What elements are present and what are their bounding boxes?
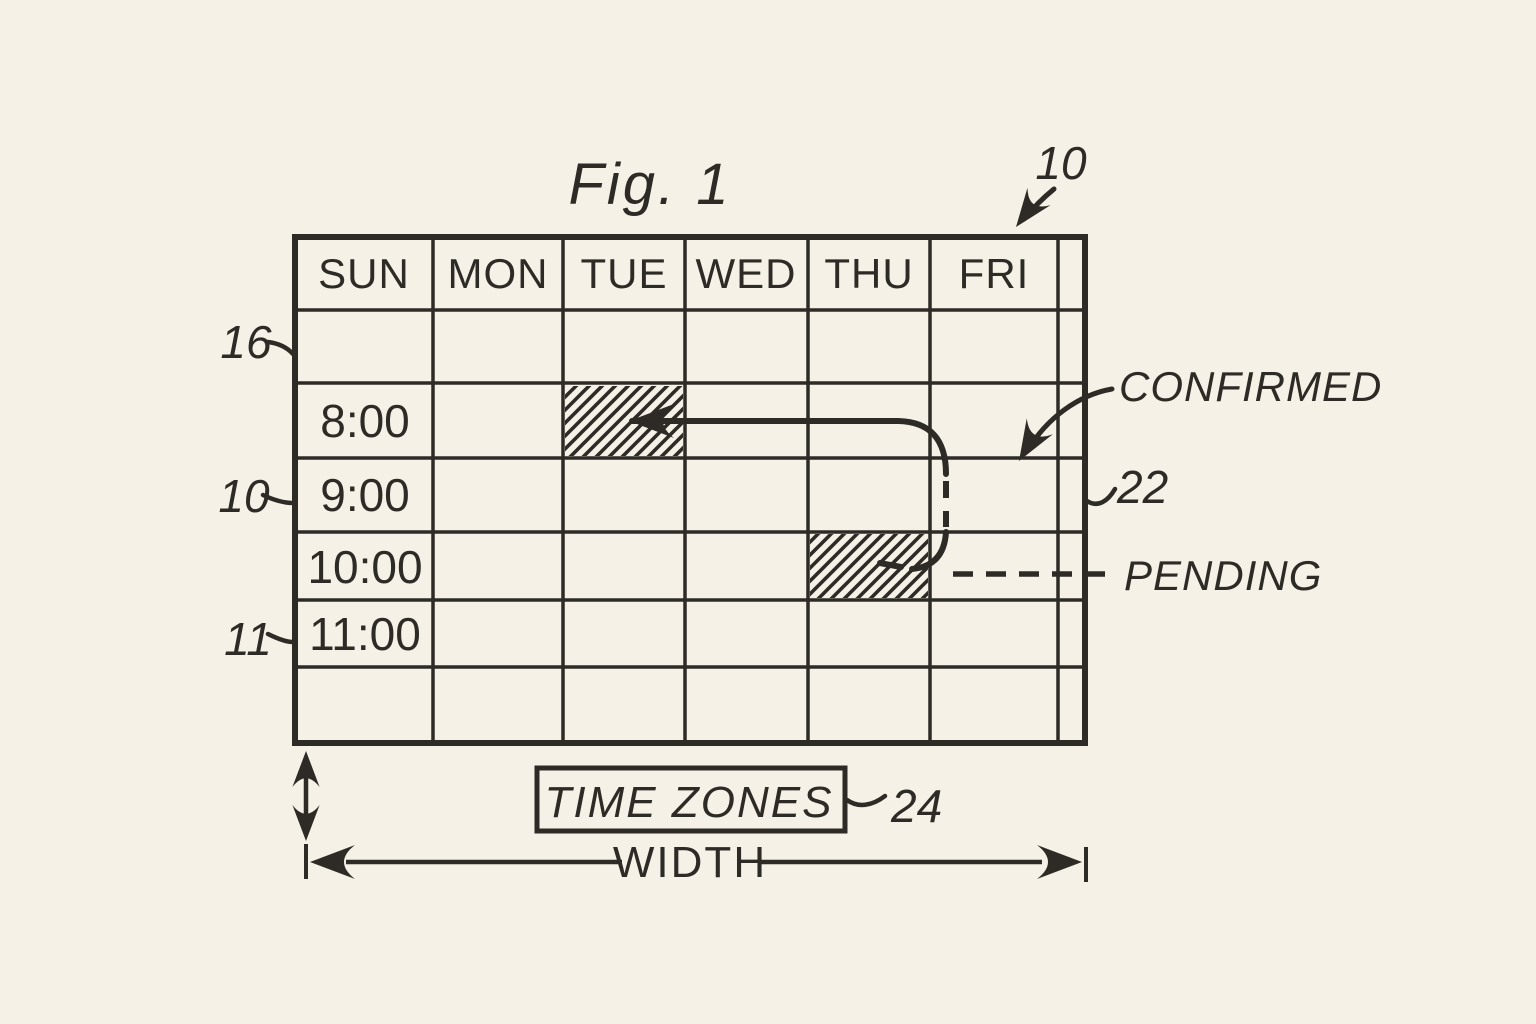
- pending-event-cell: [810, 534, 928, 598]
- time-zones-label: TIME ZONES: [545, 778, 834, 827]
- ref-22-right: 22: [1116, 461, 1168, 513]
- day-header-fri: FRI: [959, 250, 1030, 297]
- patent-figure-canvas: SUN MON TUE WED THU FRI 8:00 9:00 10:00 …: [0, 0, 1536, 1024]
- time-label-8: 8:00: [320, 395, 410, 447]
- pending-label: PENDING: [1124, 552, 1322, 599]
- day-header-wed: WED: [696, 250, 797, 297]
- reschedule-arrow-tail-dash: [880, 563, 901, 567]
- day-header-tue: TUE: [581, 250, 668, 297]
- confirmed-label: CONFIRMED: [1119, 363, 1382, 410]
- ref-16-left: 16: [220, 316, 272, 368]
- time-label-11: 11:00: [309, 608, 421, 660]
- day-header-thu: THU: [824, 250, 913, 297]
- ref-24: 24: [890, 780, 942, 832]
- day-header-sun: SUN: [318, 250, 410, 297]
- day-header-mon: MON: [448, 250, 549, 297]
- time-label-10: 10:00: [307, 541, 422, 593]
- ref-10-top: 10: [1035, 137, 1087, 189]
- figure-title: Fig. 1: [568, 152, 731, 217]
- width-label: WIDTH: [613, 838, 767, 887]
- patent-figure-page: SUN MON TUE WED THU FRI 8:00 9:00 10:00 …: [0, 0, 1536, 1024]
- time-label-9: 9:00: [320, 469, 410, 521]
- ref-11-left: 11: [224, 613, 272, 665]
